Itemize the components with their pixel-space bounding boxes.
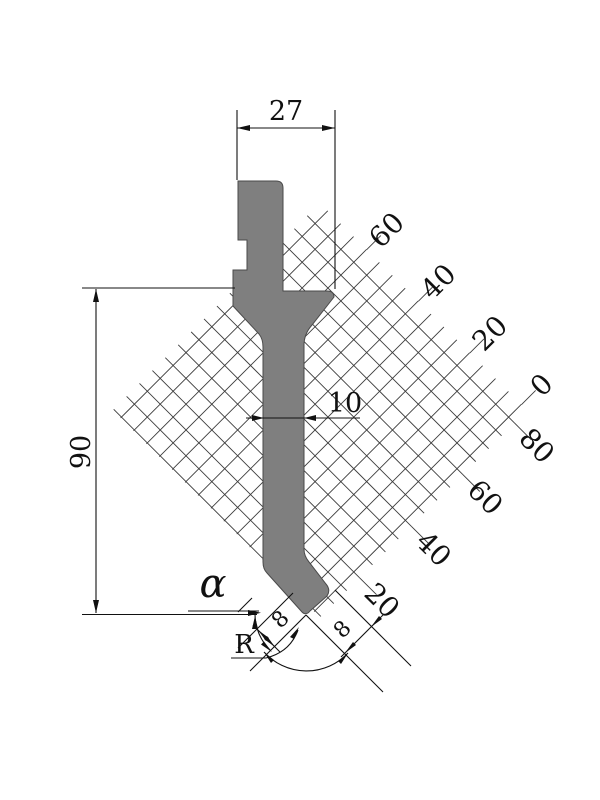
offset-right-value: 8 xyxy=(329,616,357,644)
punch-drawing-canvas: 60 40 20 0 80 60 40 20 27 90 10 xyxy=(0,0,600,800)
arrowhead xyxy=(252,415,264,421)
hatch-line xyxy=(140,383,347,590)
tip-radius-label: R xyxy=(234,630,255,660)
arrowhead xyxy=(93,289,99,302)
technical-drawing-page: 60 40 20 0 80 60 40 20 27 90 10 xyxy=(0,0,600,800)
hatch-grid-lines xyxy=(113,203,527,617)
tip-annotations: α 8 8 R xyxy=(82,561,411,692)
width-value: 27 xyxy=(269,96,303,127)
arrowhead xyxy=(93,600,99,613)
ruler-ne-ext-line xyxy=(522,390,536,404)
hatch-line xyxy=(211,301,418,508)
stem-width-value: 10 xyxy=(328,388,362,419)
offset-left-value: 8 xyxy=(267,606,295,634)
height-value: 90 xyxy=(66,435,97,469)
tip-angle-label: α xyxy=(199,561,226,607)
hatch-line xyxy=(217,306,424,513)
hatch-line xyxy=(275,366,482,573)
construction-tick xyxy=(238,598,252,612)
arrowhead xyxy=(290,627,299,639)
hatch-line xyxy=(288,379,495,586)
hatch-line xyxy=(204,319,411,526)
arrowhead xyxy=(322,125,335,131)
arrowhead xyxy=(237,125,250,131)
tip-angle-arc xyxy=(264,652,348,671)
